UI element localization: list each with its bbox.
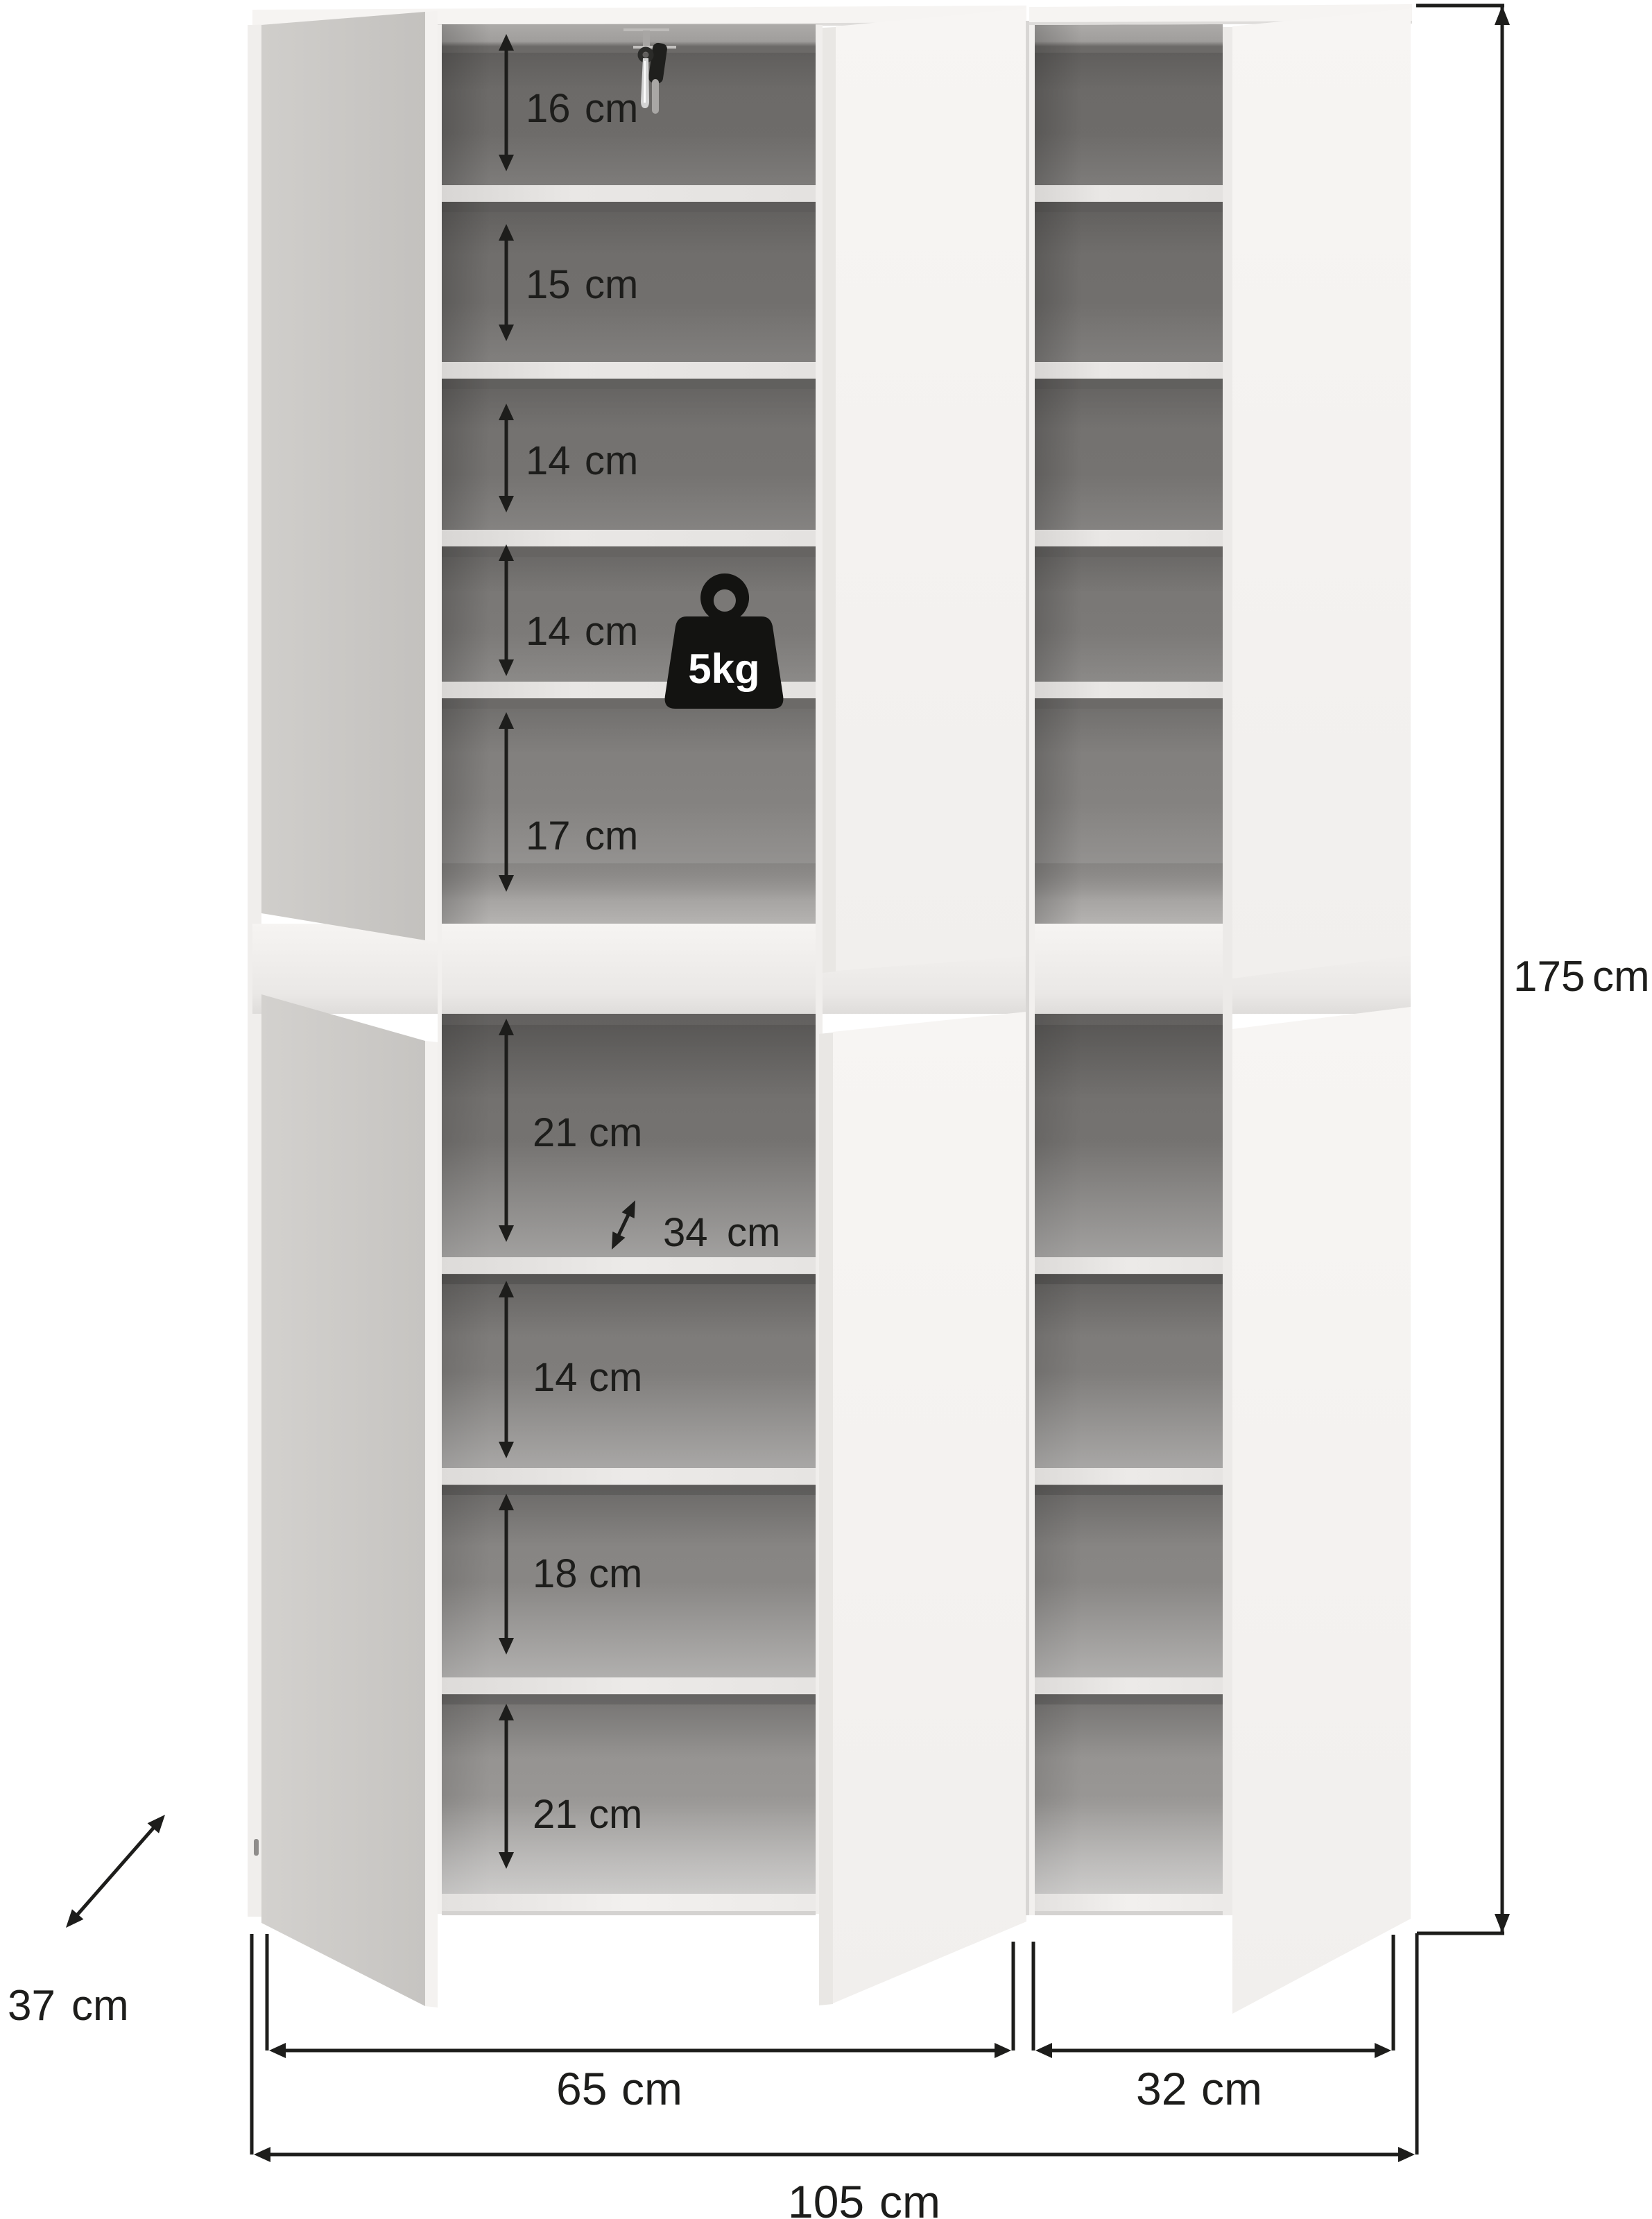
svg-text:cm: cm	[621, 2063, 682, 2114]
svg-text:14: 14	[533, 1355, 578, 1400]
svg-text:37: 37	[8, 1982, 55, 2030]
svg-text:cm: cm	[727, 1210, 780, 1255]
svg-text:cm: cm	[1201, 2063, 1262, 2114]
svg-text:21: 21	[533, 1792, 578, 1837]
svg-text:cm: cm	[589, 1110, 642, 1155]
svg-text:cm: cm	[71, 1982, 129, 2030]
svg-text:14: 14	[526, 609, 571, 654]
svg-text:cm: cm	[1592, 953, 1650, 1001]
svg-text:65: 65	[556, 2063, 607, 2114]
svg-text:175: 175	[1513, 953, 1585, 1001]
svg-text:cm: cm	[585, 813, 638, 858]
svg-text:cm: cm	[585, 438, 638, 483]
svg-text:14: 14	[526, 438, 571, 483]
svg-text:5kg: 5kg	[688, 646, 759, 692]
svg-text:cm: cm	[589, 1355, 642, 1400]
svg-text:16: 16	[526, 86, 571, 131]
svg-text:21: 21	[533, 1110, 578, 1155]
svg-text:cm: cm	[879, 2176, 940, 2219]
svg-text:cm: cm	[589, 1792, 642, 1837]
svg-text:cm: cm	[585, 609, 638, 654]
svg-text:105: 105	[788, 2176, 864, 2219]
svg-text:18: 18	[533, 1551, 578, 1596]
svg-text:cm: cm	[585, 86, 638, 131]
svg-text:cm: cm	[589, 1551, 642, 1596]
svg-text:32: 32	[1136, 2063, 1187, 2114]
svg-text:17: 17	[526, 813, 571, 858]
svg-text:cm: cm	[585, 262, 638, 307]
svg-text:15: 15	[526, 262, 571, 307]
svg-text:34: 34	[663, 1210, 708, 1255]
